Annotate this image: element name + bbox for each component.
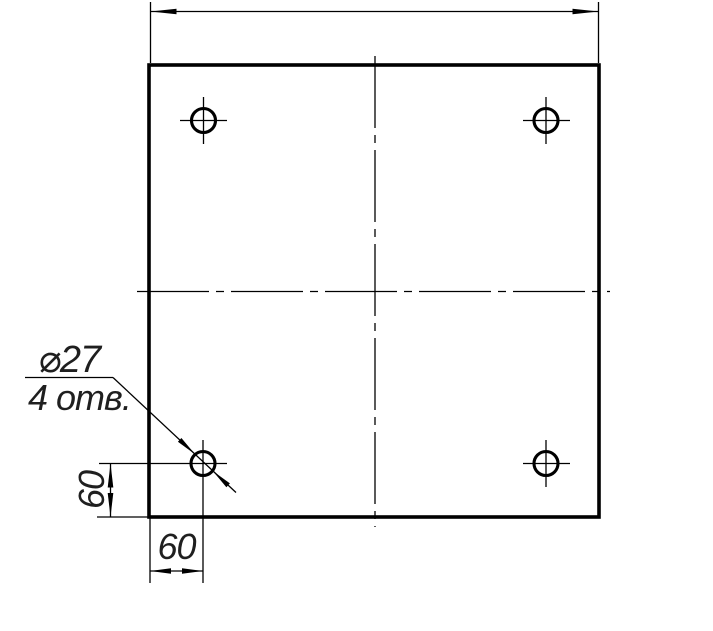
dimension-value-horizontal: 60 [157,526,196,567]
dimension-overall-width [151,2,599,63]
arrowhead-left [150,568,171,574]
leader-arrowhead-lower [213,471,230,487]
technical-drawing-canvas: 60 60 ⌀27 4 отв. [0,0,713,631]
callout-diameter-text: ⌀27 [38,339,103,381]
hole-top-left [180,97,227,144]
hole-callout: ⌀27 4 отв. [25,339,236,493]
dimension-value-vertical: 60 [71,470,112,509]
arrowhead-left [151,9,177,15]
leader-arrowhead-upper [178,438,195,454]
callout-count-text: 4 отв. [28,377,131,418]
arrowhead-right [573,9,599,15]
dimension-vertical-60: 60 [71,464,148,518]
plate-center-lines [137,56,610,527]
hole-top-right [523,97,570,144]
arrowhead-right [182,568,203,574]
hole-bottom-right [523,440,570,487]
drawing-sheet: 60 60 ⌀27 4 отв. [0,0,713,631]
dimension-horizontal-60: 60 [150,518,203,583]
